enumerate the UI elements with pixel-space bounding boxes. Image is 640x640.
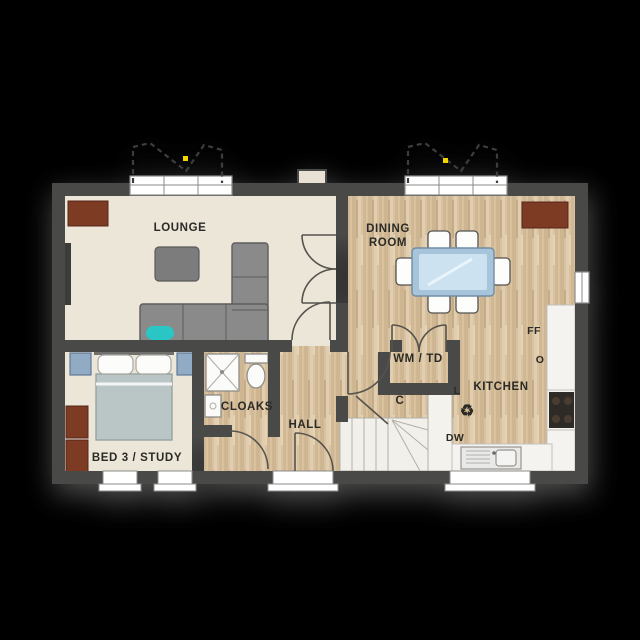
kitchen-window	[445, 471, 535, 491]
chair	[428, 231, 450, 250]
dining-label-line2: ROOM	[369, 237, 407, 249]
basin-icon	[205, 395, 221, 417]
stair-screen	[428, 390, 452, 471]
chair	[456, 294, 478, 313]
fridge-freezer-label: FF	[527, 325, 541, 337]
dishwasher-label: DW	[446, 432, 464, 444]
larder-label: L	[454, 385, 461, 397]
cloaks-label: CLOAKS	[221, 401, 273, 413]
lounge-bay-window	[130, 176, 232, 195]
chair	[456, 231, 478, 250]
coffee-table	[155, 247, 199, 281]
dining-bay-window	[405, 176, 507, 195]
oven-label: O	[536, 354, 545, 366]
canopy-marker-dot	[183, 156, 188, 161]
wardrobe	[66, 440, 88, 472]
canopy-marker-dot	[443, 158, 448, 163]
lounge-label: LOUNGE	[154, 222, 207, 234]
floorplan-drawing: LOUNGE DINING ROOM KITCHEN HALL CLOAKS B…	[0, 0, 640, 640]
pillow	[136, 355, 171, 374]
chair	[492, 258, 510, 285]
chimney-breast	[298, 170, 326, 184]
floorplan-image: LOUNGE DINING ROOM KITCHEN HALL CLOAKS B…	[0, 0, 640, 640]
dining-sideboard	[522, 202, 568, 228]
hob-icon	[549, 392, 574, 428]
lounge-sideboard	[68, 201, 108, 226]
utility-label: WM / TD	[393, 353, 443, 365]
hall-label: HALL	[288, 419, 321, 431]
cupboard-label: C	[396, 395, 405, 407]
bedside-table	[70, 353, 91, 375]
radiator	[65, 243, 71, 305]
wardrobe	[66, 406, 88, 438]
sink-icon	[461, 447, 521, 469]
recycling-icon: ♻	[460, 403, 474, 420]
bed3-label: BED 3 / STUDY	[92, 452, 182, 464]
front-door-threshold	[268, 471, 338, 491]
dining-label-line1: DINING	[366, 223, 410, 235]
shower-icon	[206, 354, 239, 391]
bed3-window	[99, 471, 141, 491]
teal-cushion	[146, 326, 174, 340]
bed3-window	[154, 471, 196, 491]
kitchen-side-window	[575, 272, 589, 303]
kitchen-label: KITCHEN	[473, 381, 528, 393]
pillow	[98, 355, 133, 374]
chair	[428, 294, 450, 313]
